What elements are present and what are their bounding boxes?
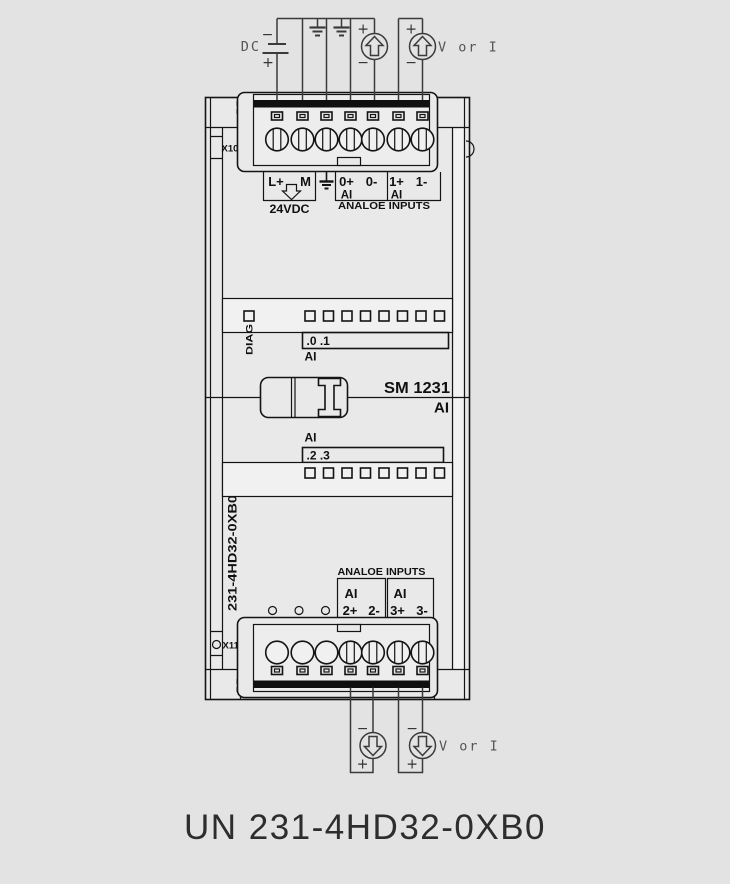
arrow-down-icon — [414, 737, 431, 756]
ai-group-bottom-left-label: AI — [345, 586, 358, 601]
terminal-label-m: M — [300, 174, 311, 189]
order-code-vertical-label: 231-4HD32-0XB0 — [226, 495, 240, 611]
terminal-screw — [291, 128, 314, 151]
analog-inputs-top-label: ANALOE INPUTS — [338, 200, 430, 212]
terminal-screw — [362, 641, 385, 664]
diagram-canvas: X10 X11 231-4HD32-0XB0 — [0, 0, 730, 884]
channel-group-top: AI — [305, 350, 317, 364]
bsource1-minus-sign: − — [357, 721, 369, 737]
arrow-up-icon — [414, 37, 431, 56]
channel-group-bottom: AI — [305, 431, 317, 445]
terminal-screw — [315, 128, 338, 151]
dc-source-label: DC — [241, 39, 261, 55]
terminal-label-1plus: 1+ — [389, 174, 404, 189]
bsource2-plus-sign: + — [406, 757, 418, 773]
bsource1-plus-sign: + — [357, 757, 369, 773]
source-icon-top-2: + − — [405, 22, 435, 72]
terminal-label-2plus: 2+ — [343, 603, 358, 618]
source1-minus-sign: − — [357, 55, 369, 71]
source2-plus-sign: + — [405, 22, 417, 38]
terminal-plain — [266, 641, 289, 664]
ai-group-bottom-right-label: AI — [394, 586, 407, 601]
source-icon-bottom-1: − + — [357, 721, 386, 773]
source-icon-top-1: + − — [357, 22, 387, 72]
channel-ids-bottom: .2 .3 — [307, 449, 331, 463]
source-type-bottom-label: V or I — [439, 739, 500, 755]
terminal-screw — [362, 128, 385, 151]
battery-minus-sign: − — [262, 27, 274, 43]
diagram-title: UN 231-4HD32-0XB0 — [0, 808, 730, 848]
source1-plus-sign: + — [357, 22, 369, 38]
terminal-label-0plus: 0+ — [339, 174, 354, 189]
battery-plus-sign: + — [262, 55, 274, 71]
wiring-diagram: X10 X11 231-4HD32-0XB0 — [0, 0, 730, 884]
analog-inputs-bottom-label: ANALOE INPUTS — [338, 566, 426, 578]
ground-icon — [334, 19, 350, 36]
terminal-screw — [266, 128, 289, 151]
wires-top — [277, 19, 423, 101]
terminal-screw — [411, 641, 434, 664]
terminal-plain — [315, 641, 338, 664]
terminal-label-2minus: 2- — [368, 603, 380, 618]
terminal-screw — [411, 128, 434, 151]
module-type-label: AI — [434, 400, 449, 417]
terminal-screw — [339, 128, 362, 151]
block-notch-top — [338, 158, 361, 166]
supply-voltage-label: 24VDC — [270, 204, 310, 216]
terminal-plain — [291, 641, 314, 664]
ground-icon — [310, 19, 326, 36]
diag-led-label: DIAG — [245, 324, 256, 355]
terminal-label-1minus: 1- — [416, 174, 428, 189]
terminal-screw — [339, 641, 362, 664]
terminal-label-0minus: 0- — [366, 174, 378, 189]
terminal-label-lplus: L+ — [268, 174, 284, 189]
terminal-cover-bottom — [238, 618, 438, 698]
bus-connector — [261, 378, 348, 418]
arrow-down-icon — [365, 737, 382, 756]
module-model-label: SM 1231 — [384, 380, 450, 397]
arrow-up-icon — [366, 37, 383, 56]
terminal-screw — [387, 641, 410, 664]
top-wiring: DC − + + − + − V or I — [241, 19, 499, 101]
terminal-label-3plus: 3+ — [390, 603, 405, 618]
terminal-screw — [387, 128, 410, 151]
source-icon-bottom-2: − + — [406, 721, 435, 773]
connector-top-label: X10 — [222, 144, 239, 155]
bsource2-minus-sign: − — [406, 721, 418, 737]
channel-ids-top: .0 .1 — [307, 334, 331, 348]
source2-minus-sign: − — [405, 55, 417, 71]
terminal-label-3minus: 3- — [416, 603, 428, 618]
diag-led — [244, 311, 254, 321]
source-type-top-label: V or I — [438, 40, 499, 56]
block-notch-bottom — [338, 625, 361, 632]
dc-battery-icon: DC − + — [241, 27, 289, 71]
module-highlight — [454, 129, 463, 669]
terminal-cover-top — [238, 93, 438, 172]
